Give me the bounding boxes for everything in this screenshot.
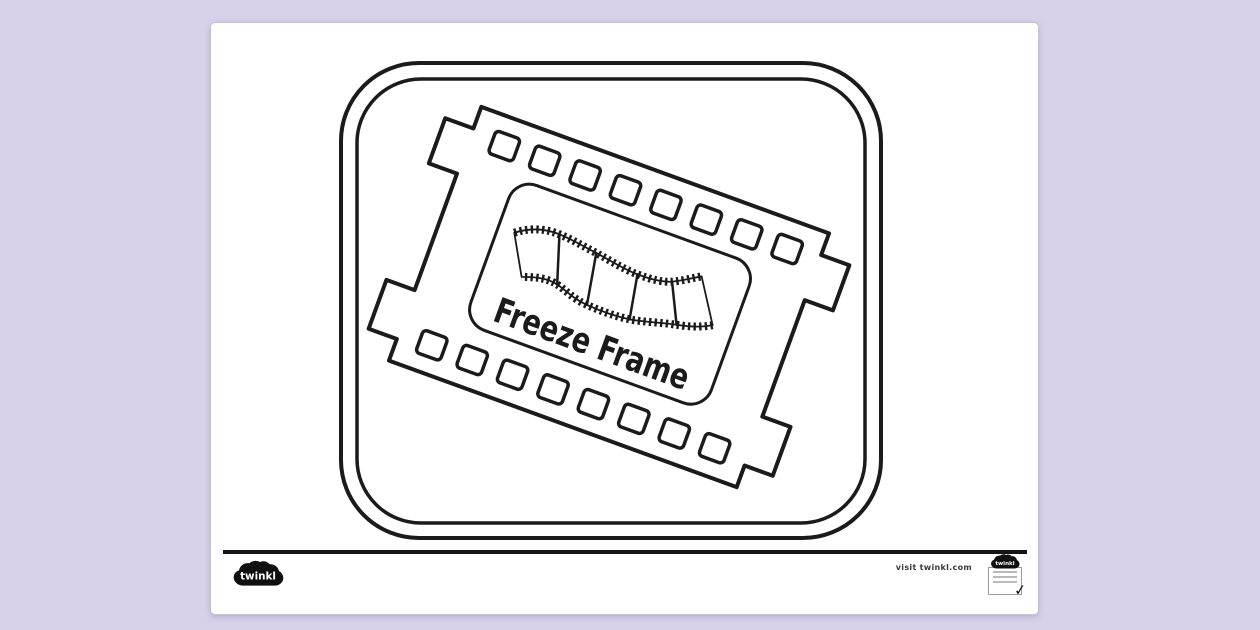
twinkl-logo-wordmark: twinkl: [240, 571, 276, 583]
visit-twinkl-text: visit twinkl.com: [896, 563, 972, 573]
twinkl-quality-badge: twinkl ✓: [985, 553, 1025, 607]
colouring-artwork: Freeze Frame: [211, 23, 1038, 614]
footer-divider-line: [223, 550, 1027, 554]
twinkl-logo: twinkl: [230, 555, 286, 592]
filmstrip-graphic: Freeze Frame: [361, 97, 857, 498]
badge-cloud-icon: twinkl: [989, 553, 1021, 570]
document-page: Freeze Frame twinkl visit twinkl.com twi…: [210, 22, 1039, 615]
app-background: Freeze Frame twinkl visit twinkl.com twi…: [0, 0, 1260, 630]
badge-checkmark-icon: ✓: [1014, 580, 1028, 599]
badge-wordmark: twinkl: [995, 561, 1014, 567]
